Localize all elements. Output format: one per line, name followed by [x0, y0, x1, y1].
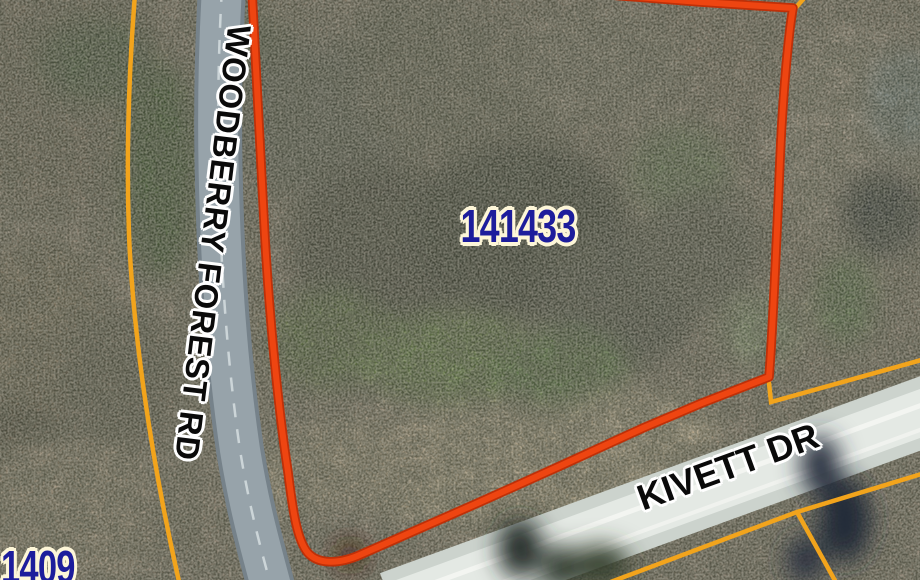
map-canvas[interactable]: WOODBERRY FOREST RD KIVETT DR 141433 140… [0, 0, 920, 580]
parcel-id-label-selected: 141433 [460, 203, 575, 249]
parcel-id-label-adjacent: 1409 [1, 544, 75, 580]
aerial-imagery [0, 0, 920, 580]
